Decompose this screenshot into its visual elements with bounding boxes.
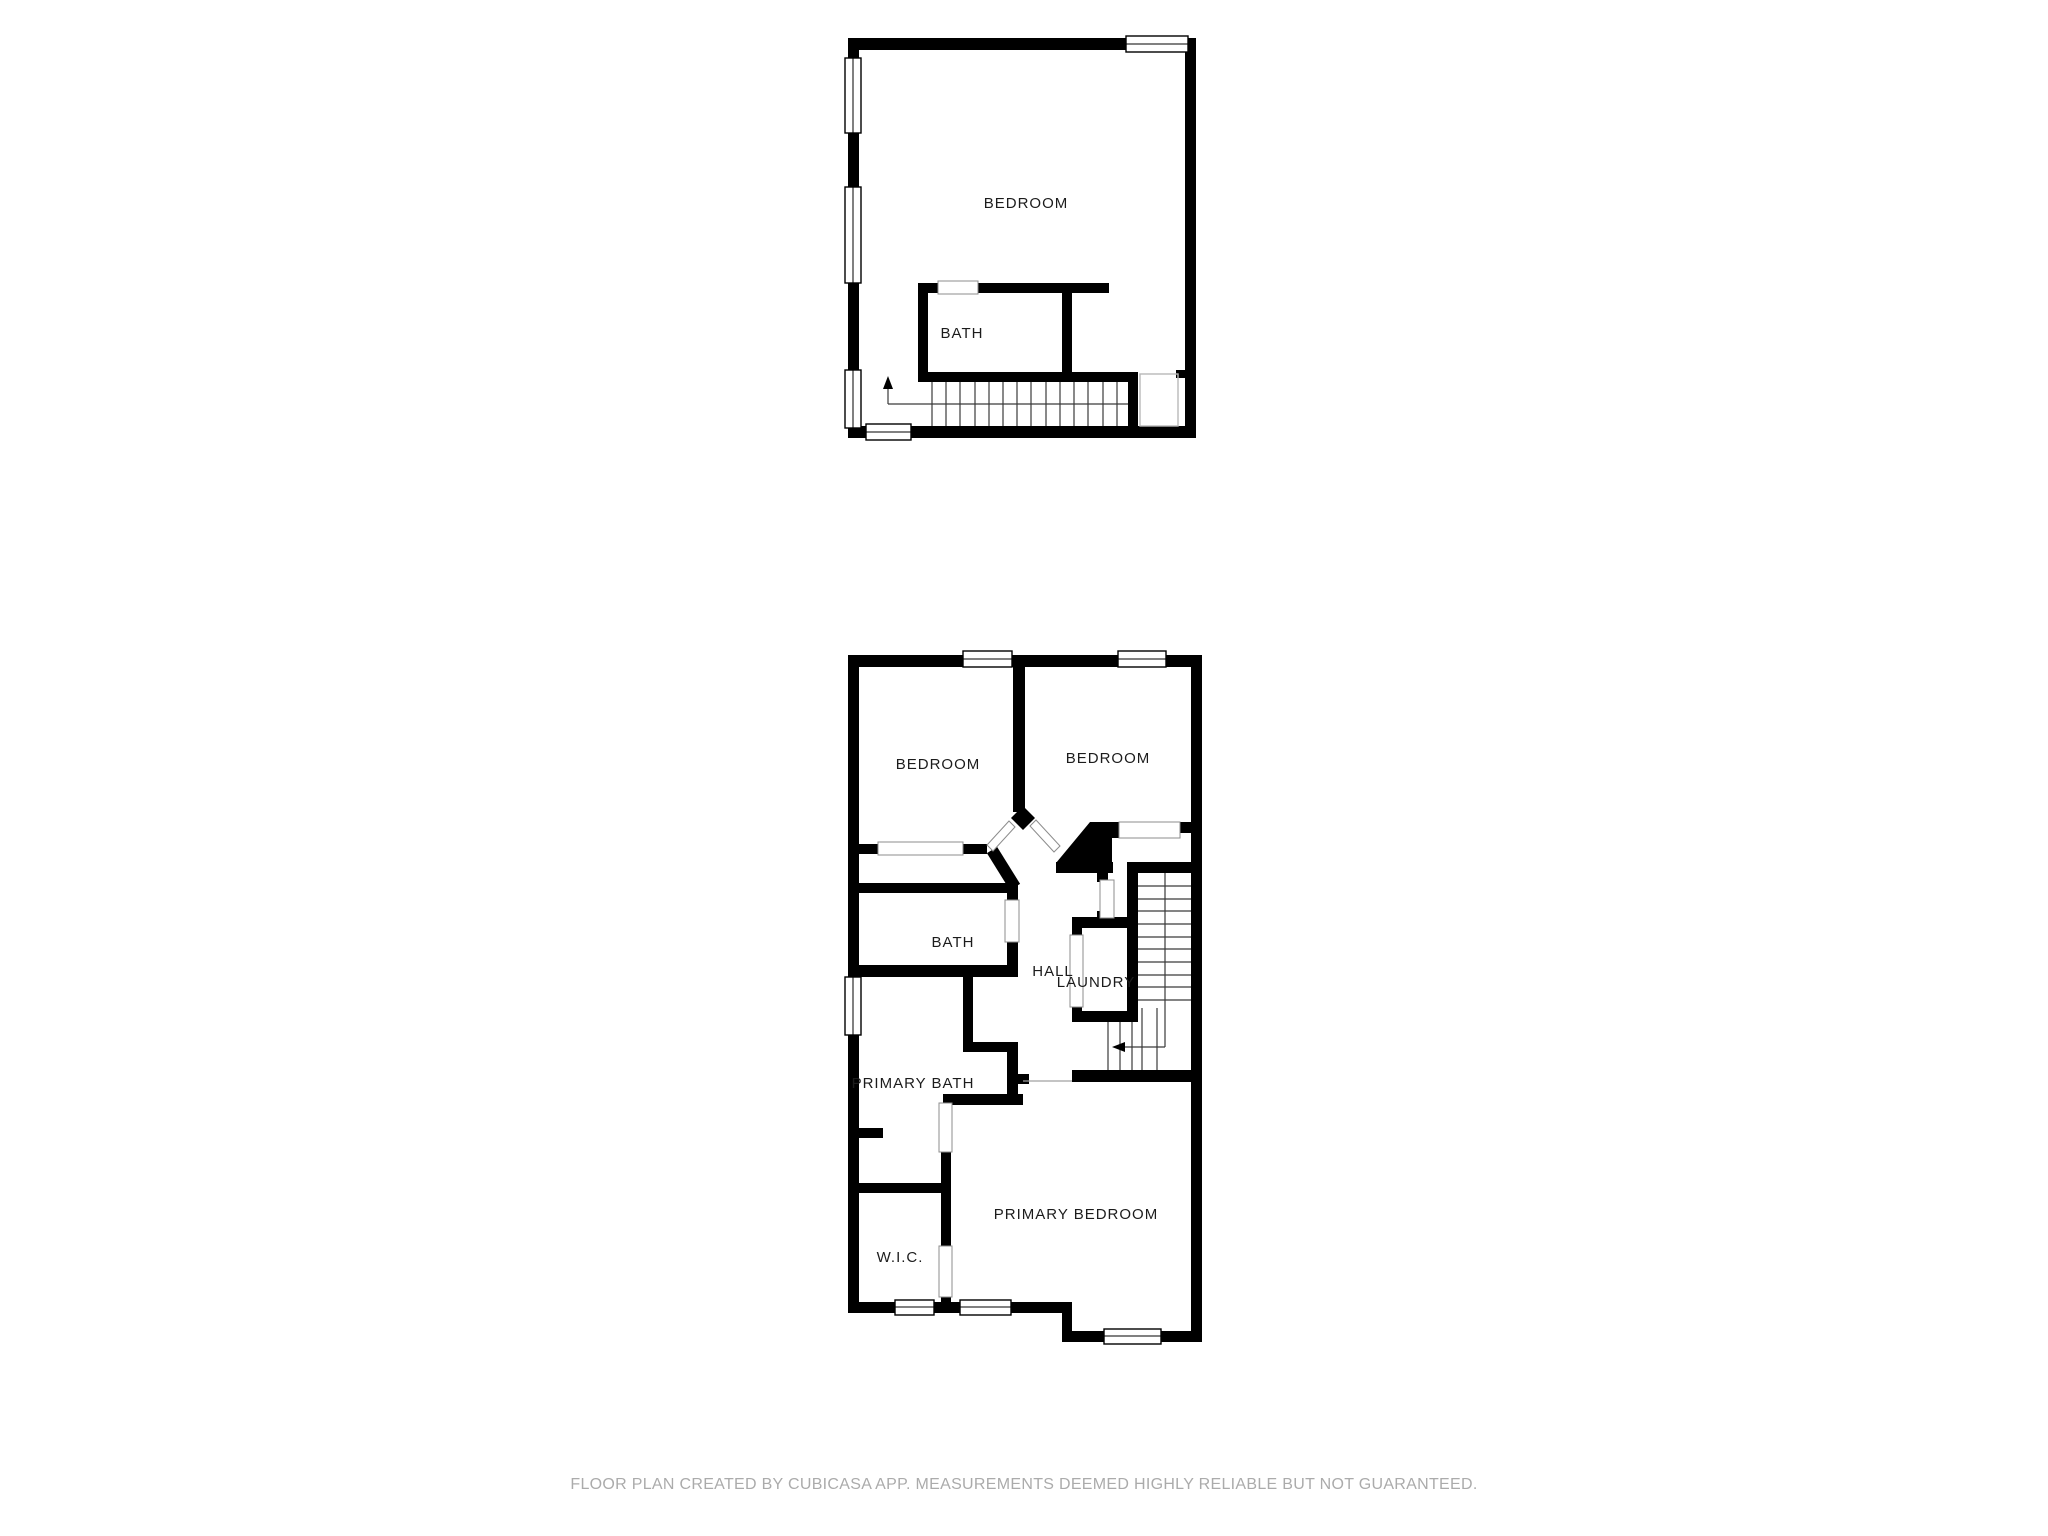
room-label-bedroom-right: BEDROOM [1066,750,1151,767]
floor-plan-page: BEDROOM BATH [0,0,2048,1536]
footer-disclaimer: FLOOR PLAN CREATED BY CUBICASA APP. MEAS… [0,1476,2048,1494]
main-staircase [1108,873,1191,1070]
door-opening-bedroom-right [1030,820,1060,852]
door-opening [938,281,978,294]
room-label-bedroom-upper: BEDROOM [984,195,1069,212]
door-opening-primary-bath [939,1103,952,1152]
wide-opening-bedroom-right [1119,822,1180,838]
window-symbol [1118,651,1166,667]
closet-opening [878,842,963,855]
room-label-primary-bath: PRIMARY BATH [852,1075,975,1092]
window-symbol [1126,36,1188,52]
window-symbol [845,187,861,283]
stairwell-void [1140,374,1178,426]
door-leaf-hall [1100,880,1114,918]
window-symbol [845,977,861,1035]
floor-plan-main: BEDROOM BEDROOM BATH HALL LAUNDRY PRIMAR… [845,651,1202,1344]
room-label-laundry: LAUNDRY [1057,974,1135,991]
window-symbol [1104,1329,1161,1344]
window-symbol [895,1300,934,1315]
door-opening-wic [939,1246,952,1297]
upper-room-labels: BEDROOM BATH [941,195,1069,342]
floor-plan-drawing: BEDROOM BATH [0,0,2048,1536]
upper-walls [848,38,1196,438]
window-symbol [845,370,861,428]
room-label-primary-bedroom: PRIMARY BEDROOM [994,1206,1158,1223]
upper-door-openings [938,281,978,294]
window-symbol [963,651,1012,667]
floor-plan-upper: BEDROOM BATH [845,36,1196,440]
window-symbol [960,1300,1011,1315]
room-label-wic: W.I.C. [877,1249,924,1266]
room-label-bath-upper: BATH [941,325,984,342]
door-opening-bedroom-left [987,821,1015,851]
window-symbol [866,424,911,440]
room-label-bedroom-left: BEDROOM [896,756,981,773]
stair-direction-arrow [883,376,893,404]
window-symbol [845,58,861,133]
door-opening-bath [1005,900,1019,942]
room-label-bath-main: BATH [932,934,975,951]
